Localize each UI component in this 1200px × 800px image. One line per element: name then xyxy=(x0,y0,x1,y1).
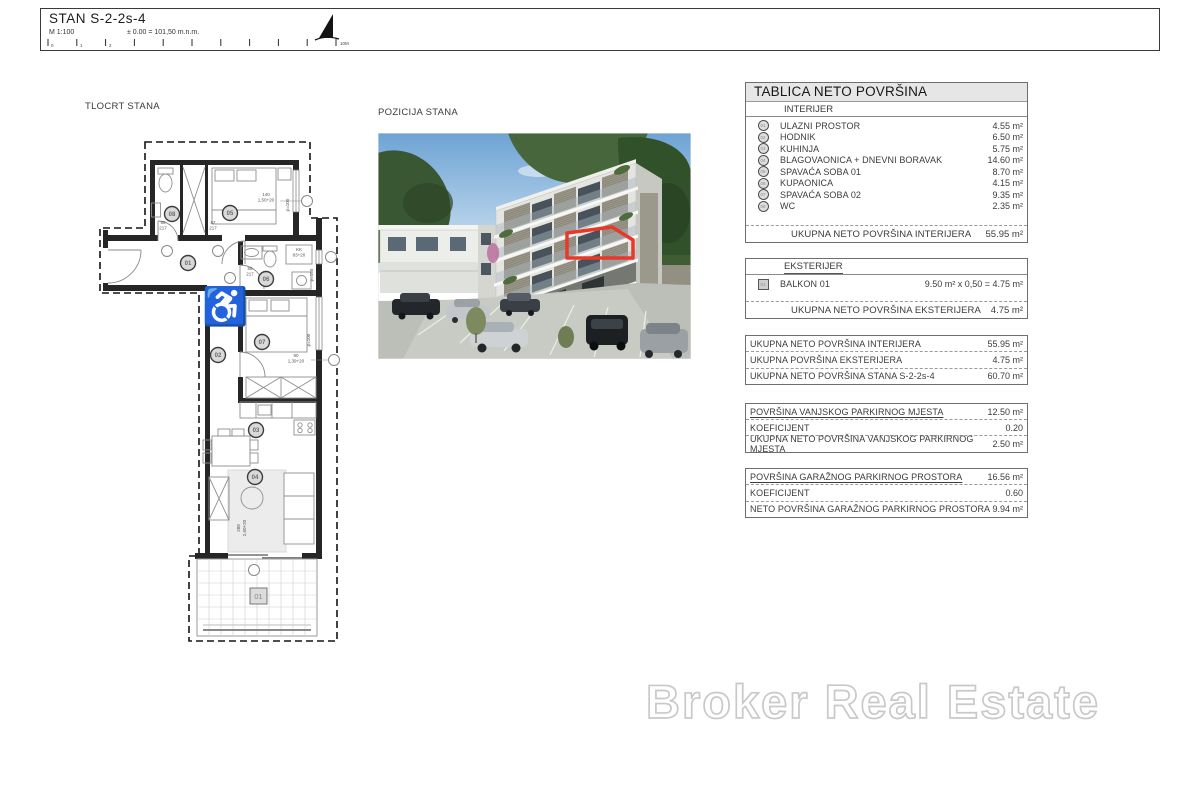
room-label: SPAVAĆA SOBA 02 xyxy=(780,190,992,200)
room-area: 5.75 m² xyxy=(992,144,1027,154)
floorplan-section-label: TLOCRT STANA xyxy=(85,101,160,112)
dim-label: 217 xyxy=(209,226,217,231)
room-number-badge: 08 xyxy=(746,201,780,212)
table-row: UKUPNA NETO POVRŠINA VANJSKOG PARKIRNOG … xyxy=(746,436,1027,452)
table-total-row: UKUPNA NETO POVRŠINA EKSTERIJERA 4.75 m² xyxy=(746,302,1027,318)
title-block: STAN S-2-2s-4 M 1:100 ± 0.00 = 101,50 m.… xyxy=(40,8,1160,51)
parking-label: UKUPNA NETO POVRŠINA VANJSKOG PARKIRNOG … xyxy=(746,434,992,454)
total-label: UKUPNA NETO POVRŠINA EKSTERIJERA xyxy=(746,305,991,316)
north-arrow-icon xyxy=(313,11,343,43)
parking-value: 12.50 m² xyxy=(987,407,1027,417)
dim-label: p=150 xyxy=(309,268,314,281)
table-total-row: UKUPNA NETO POVRŠINA INTERIJERA 55.95 m² xyxy=(746,226,1027,242)
dim-label: 82 xyxy=(210,220,216,225)
table-row: 05SPAVAĆA SOBA 018.70 m² xyxy=(746,166,1027,178)
dim-label: KK xyxy=(296,247,302,252)
summary-label: UKUPNA NETO POVRŠINA STANA S-2-2s-4 xyxy=(746,371,987,381)
table-outdoor-parking: POVRŠINA VANJSKOG PARKIRNOG MJESTA12.50 … xyxy=(745,403,1028,453)
table-title: TABLICA NETO POVRŠINA xyxy=(746,83,1027,102)
table-row: UKUPNA NETO POVRŠINA INTERIJERA55.95 m² xyxy=(746,336,1027,352)
dim-label: 217 xyxy=(246,272,254,277)
room-label: BALKON 01 xyxy=(780,279,925,289)
garage-value: 16.56 m² xyxy=(987,472,1027,482)
room-number-badge: 05 xyxy=(746,166,780,177)
dim-label: 2,60+20 xyxy=(242,519,247,536)
room-number: 02 xyxy=(215,353,222,359)
room-label: SPAVAĆA SOBA 01 xyxy=(780,167,992,177)
garage-label: POVRŠINA GARAŽNOG PARKIRNOG PROSTORA xyxy=(746,472,987,482)
garage-value: 0.60 xyxy=(1005,488,1027,498)
reference-bubble xyxy=(249,565,260,576)
room-label: KUPAONICA xyxy=(780,178,992,188)
room-number: 05 xyxy=(227,211,234,217)
table-section-header: EKSTERIJER xyxy=(746,259,1027,274)
room-number-badge: 03 xyxy=(746,143,780,154)
room-number-badge: 04 xyxy=(746,155,780,166)
table-row: UKUPNA NETO POVRŠINA STANA S-2-2s-460.70… xyxy=(746,369,1027,384)
garage-label: NETO POVRŠINA GARAŽNOG PARKIRNOG PROSTOR… xyxy=(746,504,992,514)
table-row: 01ULAZNI PROSTOR4.55 m² xyxy=(746,120,1027,132)
table-row: 07SPAVAĆA SOBA 029.35 m² xyxy=(746,189,1027,201)
room-label: ULAZNI PROSTOR xyxy=(780,121,992,131)
elevation-datum: ± 0.00 = 101,50 m.n.m. xyxy=(127,29,199,36)
dim-label: p=100 xyxy=(285,198,290,211)
dim-label: 288 xyxy=(236,524,241,532)
room-number-badge: 06 xyxy=(746,178,780,189)
table-row: 02HODNIK6.50 m² xyxy=(746,132,1027,144)
floor-plan: 01 xyxy=(95,135,345,647)
parking-label: POVRŠINA VANJSKOG PARKIRNOG MJESTA xyxy=(746,407,987,417)
dim-label: 1,39+20 xyxy=(288,359,305,364)
drawing-sheet: { "titleblock": { "title": "STAN S-2-2s-… xyxy=(0,0,1200,800)
summary-label: UKUPNA POVRŠINA EKSTERIJERA xyxy=(746,355,992,365)
balcony-tag: 01 xyxy=(254,592,262,601)
summary-value: 60.70 m² xyxy=(987,371,1027,381)
section-label: EKSTERIJER xyxy=(784,261,843,274)
summary-value: 4.75 m² xyxy=(992,355,1027,365)
room-area: 4.15 m² xyxy=(992,178,1027,188)
drawing-scale: M 1:100 xyxy=(49,29,74,36)
dim-label: 140 xyxy=(262,192,270,197)
dim-label: 83+20 xyxy=(293,253,306,258)
watermark: Broker Real Estate xyxy=(646,674,1100,729)
scale-tick-label: 0 xyxy=(51,43,54,48)
dim-label: 85 xyxy=(160,220,166,225)
total-label: UKUPNA NETO POVRŠINA INTERIJERA xyxy=(746,229,986,240)
table-section-header: INTERIJER xyxy=(746,102,1027,116)
dim-label: 85 xyxy=(247,266,253,271)
table-garage-parking: POVRŠINA GARAŽNOG PARKIRNOG PROSTORA16.5… xyxy=(745,468,1028,518)
room-area: 9.35 m² xyxy=(992,190,1027,200)
room-rows: 01ULAZNI PROSTOR4.55 m² 02HODNIK6.50 m² … xyxy=(746,117,1027,212)
room-area: 9.50 m² x 0,50 = 4.75 m² xyxy=(925,279,1027,289)
parking-value: 0.20 xyxy=(1005,423,1027,433)
room-number: 03 xyxy=(253,428,260,434)
table-row: NETO POVRŠINA GARAŽNOG PARKIRNOG PROSTOR… xyxy=(746,502,1027,517)
table-row: 04BLAGOVAONICA + DNEVNI BORAVAK14.60 m² xyxy=(746,155,1027,167)
wheelchair-accessible-icon: ♿ xyxy=(202,285,248,328)
parking-label: KOEFICIJENT xyxy=(746,423,1005,433)
dim-label: 1,50+20 xyxy=(258,198,275,203)
room-label: KUHINJA xyxy=(780,144,992,154)
summary-label: UKUPNA NETO POVRŠINA INTERIJERA xyxy=(746,339,987,349)
room-number-badge: 07 xyxy=(746,189,780,200)
dim-label: 217 xyxy=(159,226,167,231)
section-label: INTERIJER xyxy=(784,104,833,115)
table-row: 08WC2.35 m² xyxy=(746,201,1027,213)
parking-value: 2.50 m² xyxy=(992,439,1027,449)
room-area: 4.55 m² xyxy=(992,121,1027,131)
summary-value: 55.95 m² xyxy=(987,339,1027,349)
table-row: 03KUHINJA5.75 m² xyxy=(746,143,1027,155)
scale-bar: 0 1 2 10M xyxy=(45,38,357,50)
room-area: 14.60 m² xyxy=(987,155,1027,165)
room-number-badge: 02 xyxy=(746,132,780,143)
sliding-door xyxy=(228,555,302,558)
area-tables: TABLICA NETO POVRŠINA INTERIJER 01ULAZNI… xyxy=(745,82,1028,552)
balcony: 01 xyxy=(197,559,317,636)
room-area: 2.35 m² xyxy=(992,201,1027,211)
room-label: HODNIK xyxy=(780,132,992,142)
table-interior-areas: TABLICA NETO POVRŠINA INTERIJER 01ULAZNI… xyxy=(745,82,1028,243)
garage-label: KOEFICIJENT xyxy=(746,488,1005,498)
table-row: UKUPNA POVRŠINA EKSTERIJERA4.75 m² xyxy=(746,352,1027,368)
garage-value: 9.94 m² xyxy=(992,504,1027,514)
room-number: 04 xyxy=(252,475,259,481)
balcony-badge: 01 xyxy=(746,279,780,290)
position-photo xyxy=(378,133,691,359)
table-row: POVRŠINA GARAŽNOG PARKIRNOG PROSTORA16.5… xyxy=(746,469,1027,485)
room-number-badge: 01 xyxy=(746,120,780,131)
room-number: 08 xyxy=(169,212,176,218)
room-label: BLAGOVAONICA + DNEVNI BORAVAK xyxy=(780,155,987,165)
neighbour-house xyxy=(378,225,490,293)
total-value: 4.75 m² xyxy=(991,305,1027,316)
position-section-label: POZICIJA STANA xyxy=(378,107,458,118)
scale-tick-label: 2 xyxy=(109,43,112,48)
room-number: 07 xyxy=(259,340,266,346)
dim-label: p=100 xyxy=(306,333,311,346)
table-row: KOEFICIJENT0.60 xyxy=(746,485,1027,501)
dim-label: 90 xyxy=(293,353,299,358)
sheet-title: STAN S-2-2s-4 xyxy=(49,11,146,26)
room-number: 01 xyxy=(185,261,192,267)
table-exterior-areas: EKSTERIJER 01 BALKON 01 9.50 m² x 0,50 =… xyxy=(745,258,1028,319)
divider xyxy=(746,274,1027,275)
room-area: 6.50 m² xyxy=(992,132,1027,142)
table-row: 06KUPAONICA4.15 m² xyxy=(746,178,1027,190)
scale-tick-label: 1 xyxy=(80,43,83,48)
table-row: POVRŠINA VANJSKOG PARKIRNOG MJESTA12.50 … xyxy=(746,404,1027,420)
total-value: 55.95 m² xyxy=(986,229,1028,240)
room-label: WC xyxy=(780,201,992,211)
room-number: 06 xyxy=(263,277,270,283)
table-row: 01 BALKON 01 9.50 m² x 0,50 = 4.75 m² xyxy=(746,277,1027,291)
room-area: 8.70 m² xyxy=(992,167,1027,177)
table-total-summary: UKUPNA NETO POVRŠINA INTERIJERA55.95 m² … xyxy=(745,335,1028,385)
